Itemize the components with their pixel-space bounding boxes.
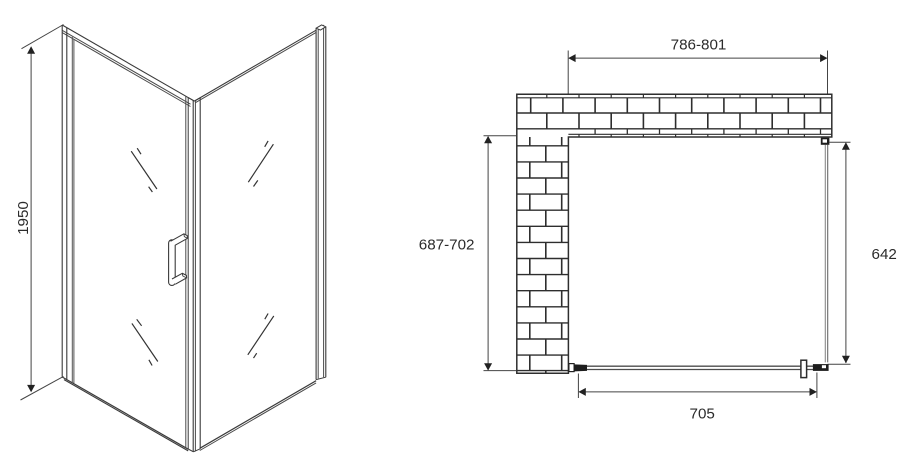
svg-text:786-801: 786-801 <box>671 37 727 54</box>
svg-text:687-702: 687-702 <box>419 237 475 254</box>
svg-text:705: 705 <box>690 405 715 422</box>
svg-text:642: 642 <box>872 246 897 263</box>
svg-text:1950: 1950 <box>15 201 32 235</box>
